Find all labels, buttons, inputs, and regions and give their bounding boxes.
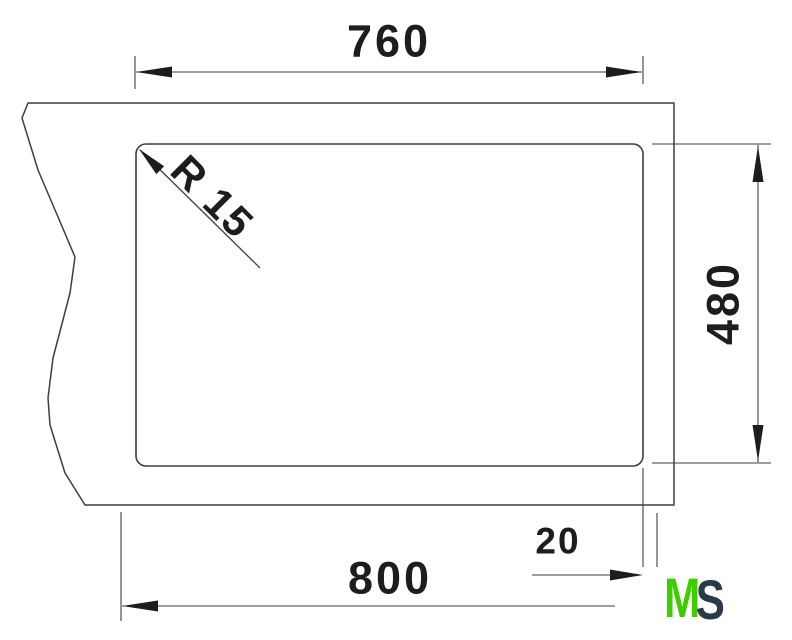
dim-label-sink-width: 800 <box>348 556 432 601</box>
countertop-edge-path <box>22 103 674 505</box>
technical-drawing-canvas: 760 480 800 20 R 15 MS <box>0 0 792 640</box>
arrow-right-icon <box>610 570 643 581</box>
dim-label-edge-offset: 20 <box>535 523 580 560</box>
arrow-up-icon <box>753 146 764 182</box>
sink-cutout-drawing <box>0 0 792 640</box>
arrow-down-icon <box>753 425 764 461</box>
arrow-right-icon <box>606 67 642 78</box>
logo-letter-m: M <box>664 566 700 629</box>
ms-logo: MS <box>664 570 725 626</box>
logo-letter-s: S <box>696 568 725 631</box>
countertop-outline <box>22 103 674 505</box>
arrow-left-icon <box>122 601 158 612</box>
dim-label-cutout-width: 760 <box>347 19 431 64</box>
arrow-left-icon <box>136 67 172 78</box>
dim-label-cutout-depth: 480 <box>701 261 746 345</box>
